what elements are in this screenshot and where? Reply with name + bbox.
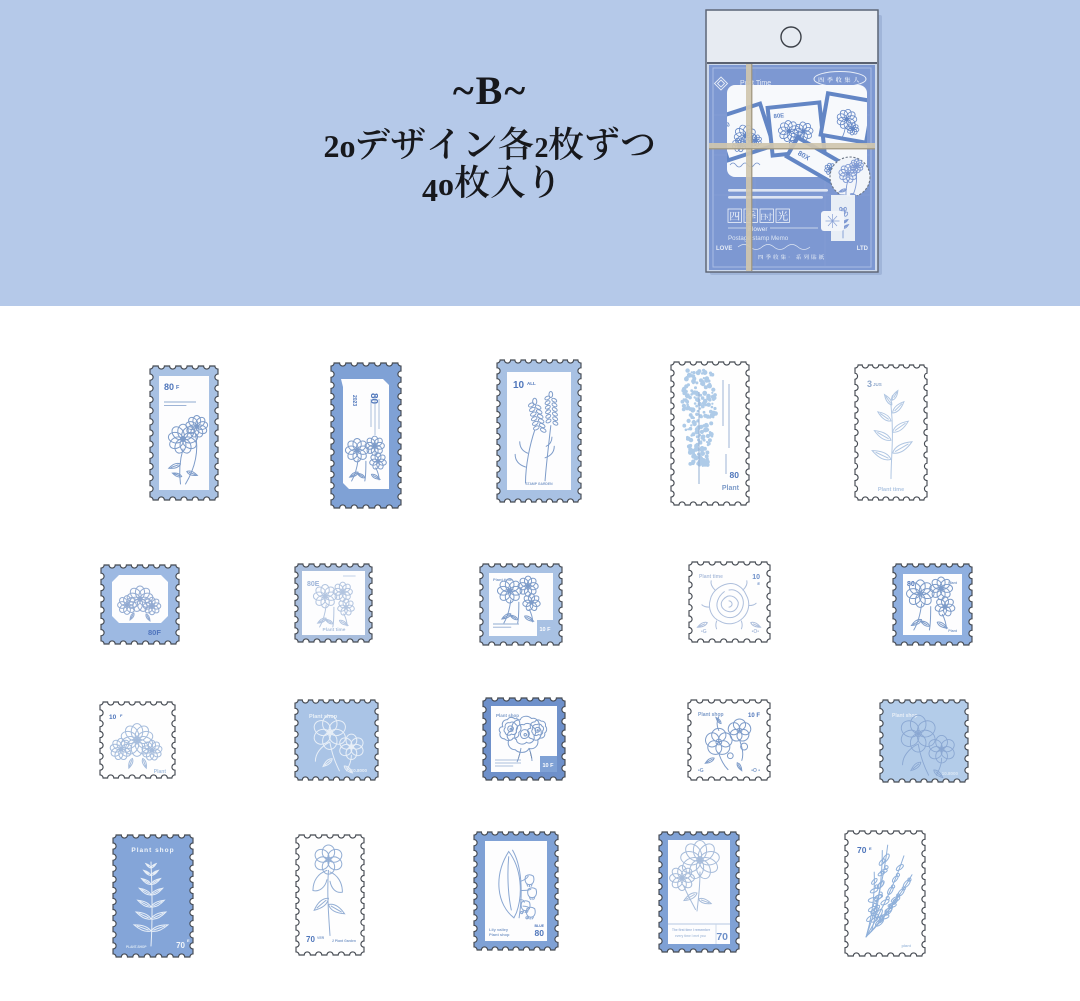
svg-text:ALL: ALL [527, 381, 536, 386]
svg-text:Plant time: Plant time [323, 627, 346, 633]
svg-text:80: 80 [730, 470, 740, 480]
svg-text:Plant shop: Plant shop [496, 713, 519, 718]
svg-text:80F: 80F [148, 628, 161, 637]
svg-text:70: 70 [306, 935, 315, 944]
svg-text:3: 3 [867, 379, 872, 389]
svg-text:70: 70 [716, 931, 728, 943]
svg-text:•G: •G [701, 629, 707, 635]
svg-text:10.8000: 10.8000 [942, 771, 959, 776]
svg-text:Plant: Plant [722, 485, 740, 492]
svg-text:10 F: 10 F [539, 627, 551, 633]
svg-text:10.8000: 10.8000 [351, 768, 368, 773]
svg-text:Plant shop: Plant shop [698, 712, 724, 718]
svg-text:•G: •G [698, 768, 704, 774]
svg-text:70: 70 [176, 941, 185, 950]
svg-text:STAMP GARDEN: STAMP GARDEN [525, 482, 553, 486]
svg-text:BLUE: BLUE [534, 924, 544, 928]
svg-text:2 Plant Garden: 2 Plant Garden [332, 939, 356, 943]
svg-text:2023: 2023 [351, 395, 357, 406]
svg-text:VER: VER [317, 936, 325, 940]
svg-text:Plant shop: Plant shop [892, 713, 918, 719]
svg-text:~B~: ~B~ [453, 68, 527, 113]
svg-text:80: 80 [164, 382, 174, 392]
svg-text:E: E [869, 846, 872, 851]
svg-text:10 F: 10 F [542, 763, 554, 769]
svg-text:Plant shop: Plant shop [489, 932, 510, 937]
svg-text:JUS: JUS [873, 382, 882, 387]
svg-text:LOVE: LOVE [716, 246, 732, 252]
svg-text:10: 10 [109, 714, 117, 721]
svg-text:2: 2 [535, 133, 549, 164]
svg-text:Plant shop: Plant shop [131, 847, 174, 854]
svg-text:E: E [187, 938, 190, 943]
svg-text:Plant time: Plant time [699, 574, 723, 580]
svg-text:Plant: Plant [948, 629, 958, 633]
svg-text:Plant time: Plant time [878, 487, 904, 493]
svg-text:10: 10 [752, 574, 760, 581]
svg-text:o: o [438, 166, 454, 202]
svg-text:10 F: 10 F [748, 713, 760, 719]
svg-text:LTD: LTD [857, 246, 869, 252]
svg-text:80: 80 [907, 581, 915, 588]
svg-text:plant: plant [901, 943, 911, 948]
svg-text:•O •: •O • [751, 768, 760, 774]
svg-text:Postage stamp Memo: Postage stamp Memo [728, 235, 789, 242]
svg-text:•O•: •O• [752, 629, 760, 635]
svg-text:every time I met you: every time I met you [675, 934, 706, 938]
svg-text:PLANT-SHOP: PLANT-SHOP [126, 945, 147, 949]
svg-text:2o: 2o [324, 128, 356, 164]
svg-text:4: 4 [422, 172, 438, 208]
svg-text:70: 70 [857, 845, 867, 855]
svg-text:80: 80 [368, 393, 379, 405]
svg-text:Plant: Plant [154, 769, 167, 775]
svg-text:10: 10 [513, 380, 525, 391]
svg-text:E: E [757, 581, 760, 586]
svg-text:80E: 80E [773, 113, 784, 120]
svg-text:The first time I remember: The first time I remember [672, 928, 711, 932]
svg-text:80: 80 [535, 928, 545, 938]
